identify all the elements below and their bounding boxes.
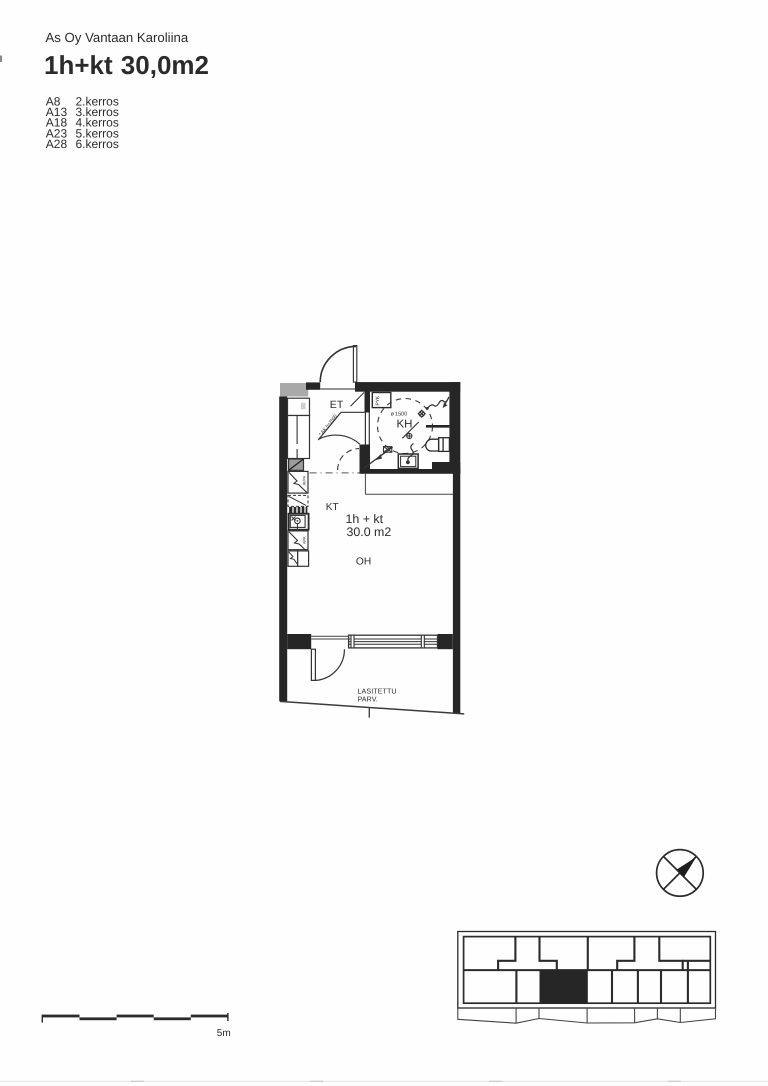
svg-text:ET: ET	[330, 399, 344, 411]
svg-text:6.kerros: 6.kerros	[76, 137, 119, 151]
svg-text:ø 1500: ø 1500	[391, 412, 408, 418]
svg-text:APK: APK	[303, 536, 307, 544]
svg-text:1h + kt: 1h + kt	[346, 512, 384, 526]
svg-text:JK/PA: JK/PA	[303, 475, 307, 486]
svg-text:5m: 5m	[217, 1028, 231, 1039]
svg-text:PYK: PYK	[375, 395, 381, 405]
svg-text:1h+kt: 1h+kt	[44, 50, 113, 80]
svg-text:KH: KH	[397, 419, 413, 431]
svg-text:A28: A28	[46, 137, 68, 151]
svg-text:PARV.: PARV.	[358, 695, 378, 703]
svg-text:LASITETTU: LASITETTU	[358, 688, 397, 696]
svg-text:As Oy Vantaan Karoliina: As Oy Vantaan Karoliina	[46, 30, 189, 45]
svg-text:30,0m2: 30,0m2	[121, 50, 209, 80]
svg-text:OH: OH	[356, 557, 371, 568]
svg-text:30.0 m2: 30.0 m2	[347, 525, 392, 539]
svg-text:KT: KT	[326, 502, 339, 513]
